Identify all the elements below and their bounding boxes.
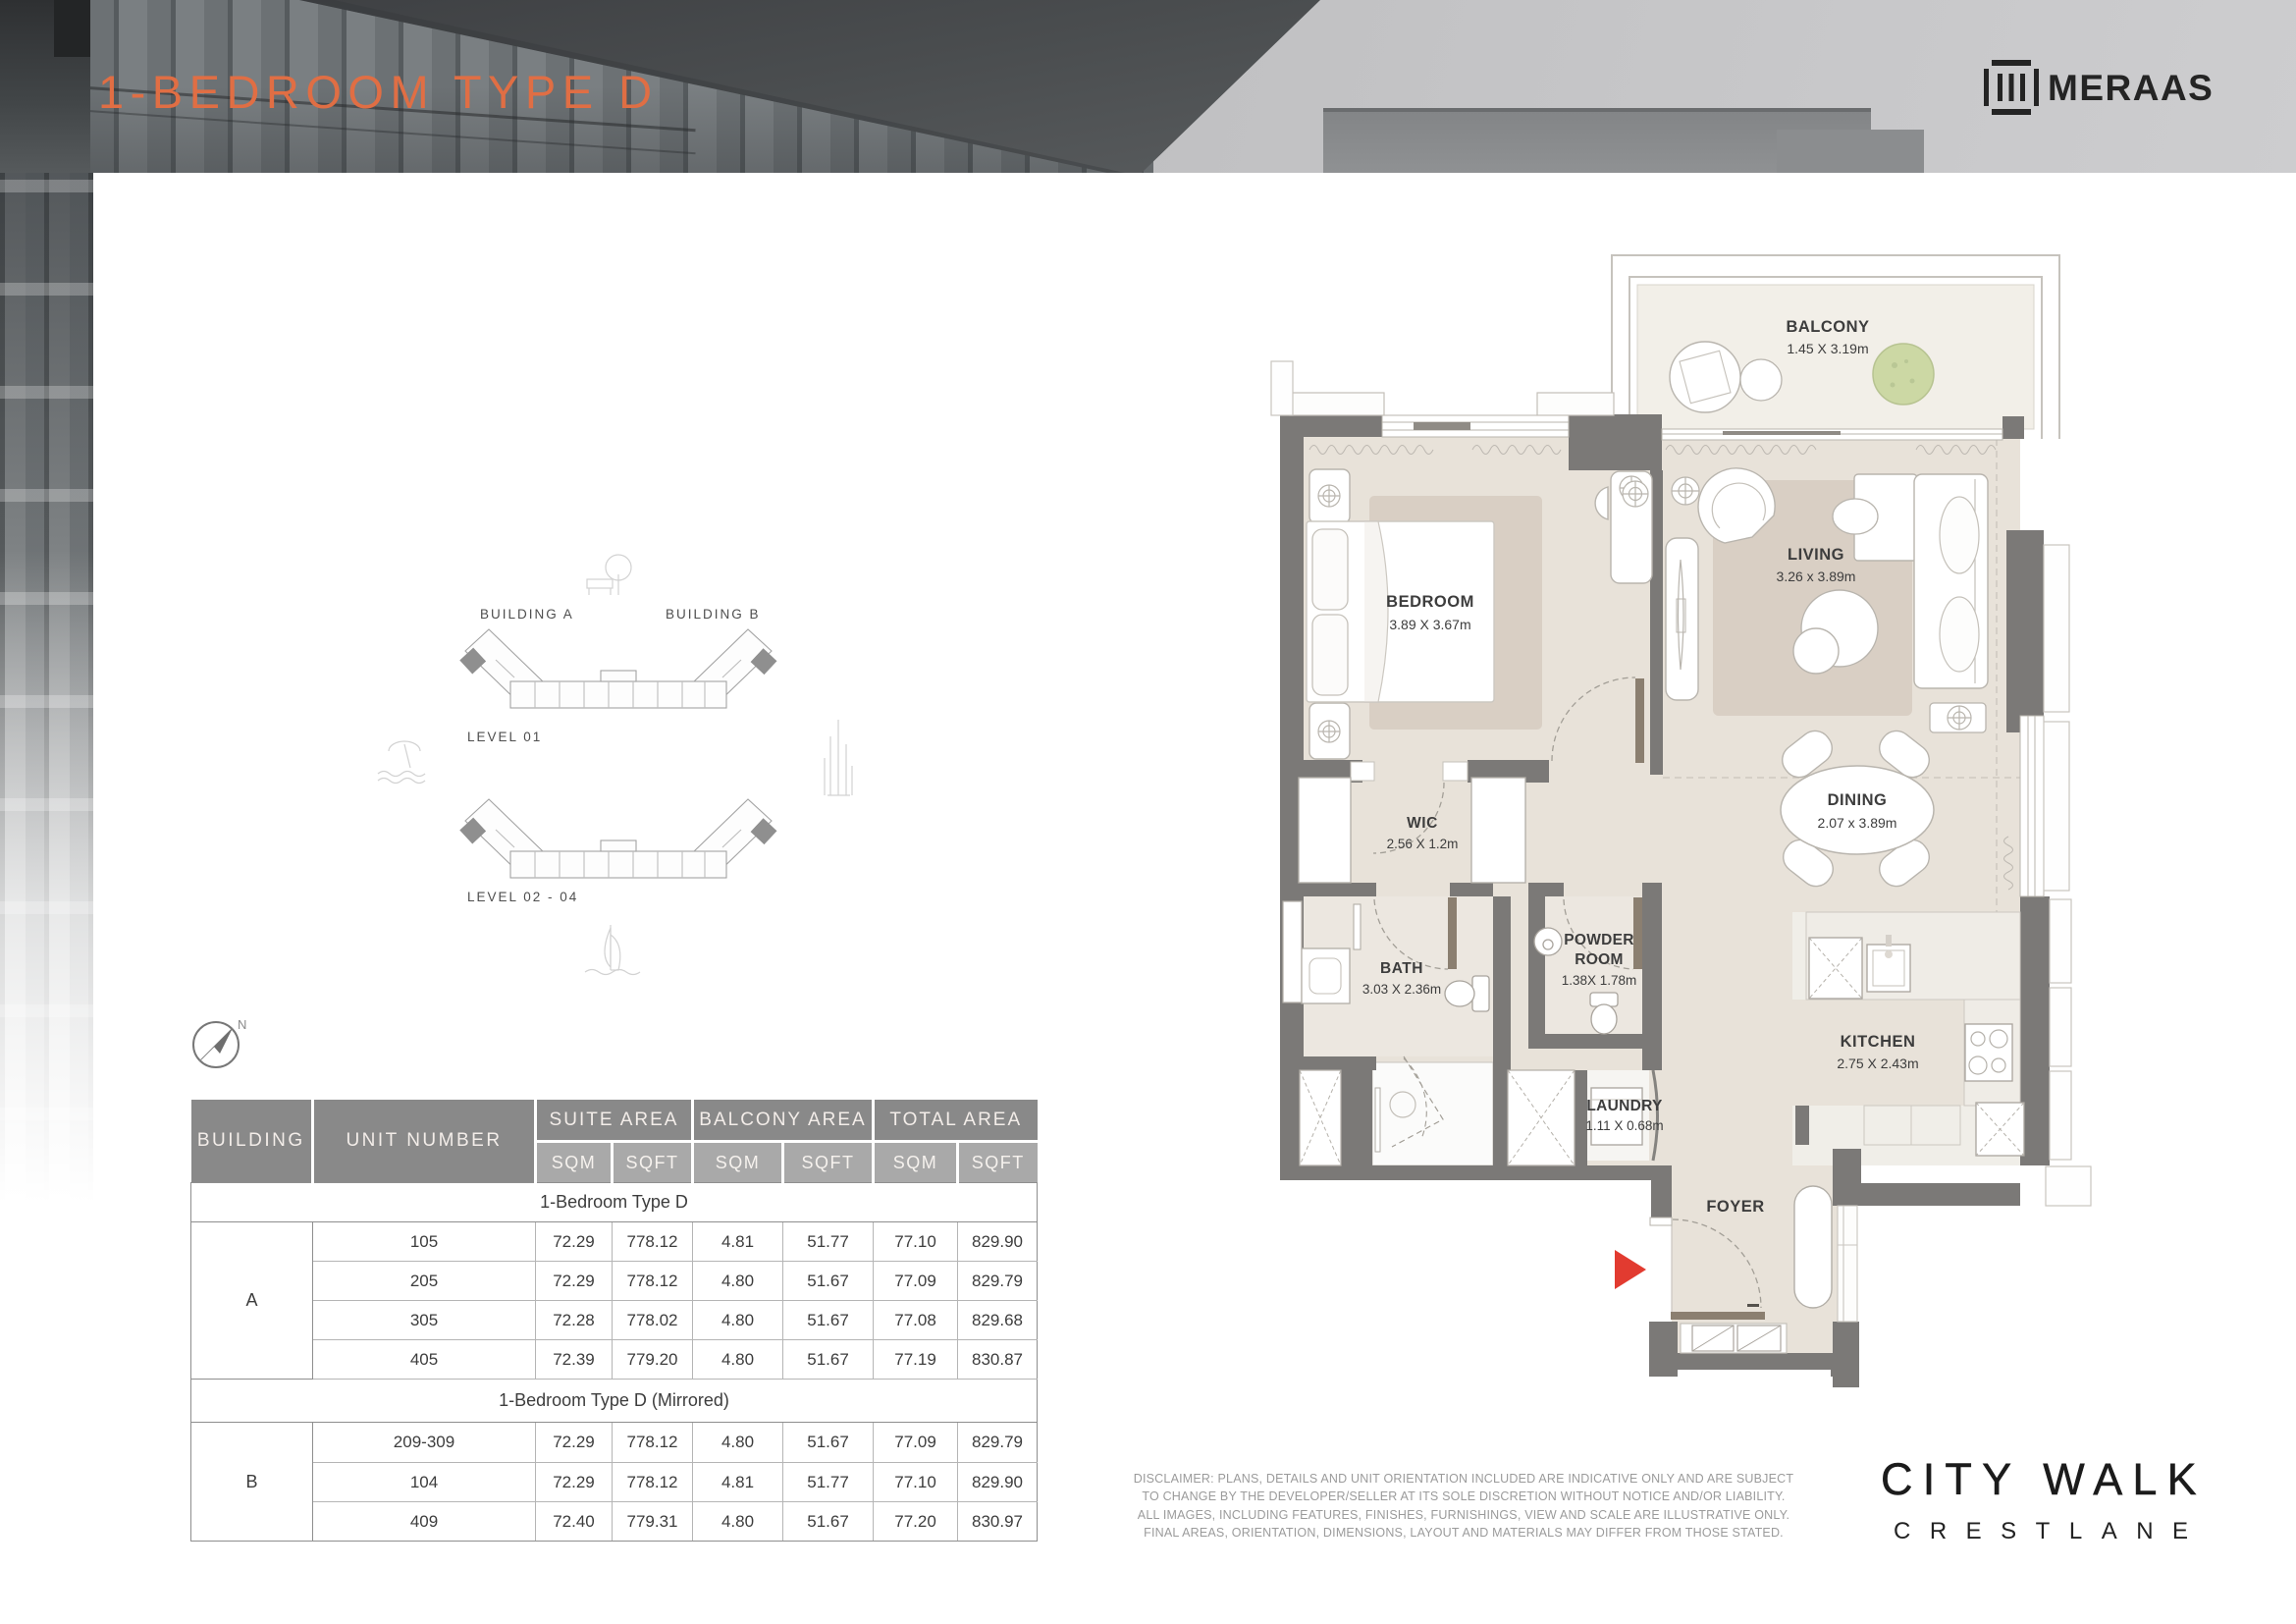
svg-text:3.89 X 3.67m: 3.89 X 3.67m (1389, 617, 1470, 632)
svg-text:BEDROOM: BEDROOM (1386, 593, 1474, 611)
svg-text:FOYER: FOYER (1706, 1198, 1764, 1216)
svg-text:3.03 X 2.36m: 3.03 X 2.36m (1362, 982, 1441, 997)
svg-text:N: N (238, 1017, 246, 1032)
svg-text:WIC: WIC (1407, 815, 1438, 832)
svg-text:BATH: BATH (1380, 960, 1423, 977)
svg-text:1.11 X 0.68m: 1.11 X 0.68m (1585, 1118, 1663, 1133)
svg-text:1.38X 1.78m: 1.38X 1.78m (1562, 973, 1637, 988)
svg-text:MERAAS: MERAAS (2048, 68, 2214, 108)
svg-text:BUILDING A: BUILDING A (480, 607, 574, 622)
svg-text:BUILDING B: BUILDING B (666, 607, 761, 622)
svg-text:2.75 X 2.43m: 2.75 X 2.43m (1837, 1056, 1918, 1071)
svg-text:2.56 X 1.2m: 2.56 X 1.2m (1387, 837, 1459, 851)
svg-text:3.26 x 3.89m: 3.26 x 3.89m (1777, 568, 1856, 584)
svg-text:LAUNDRY: LAUNDRY (1586, 1098, 1663, 1114)
svg-text:LEVEL 01: LEVEL 01 (467, 730, 542, 744)
svg-text:2.07 x 3.89m: 2.07 x 3.89m (1818, 815, 1897, 831)
svg-text:1.45 X 3.19m: 1.45 X 3.19m (1787, 341, 1868, 356)
svg-text:POWDER: POWDER (1564, 932, 1634, 948)
svg-text:KITCHEN: KITCHEN (1841, 1033, 1916, 1051)
svg-text:DINING: DINING (1828, 791, 1888, 809)
svg-text:ROOM: ROOM (1575, 951, 1623, 968)
svg-text:BALCONY: BALCONY (1786, 318, 1869, 336)
svg-text:LIVING: LIVING (1788, 546, 1844, 564)
svg-text:LEVEL 02 - 04: LEVEL 02 - 04 (467, 890, 578, 904)
